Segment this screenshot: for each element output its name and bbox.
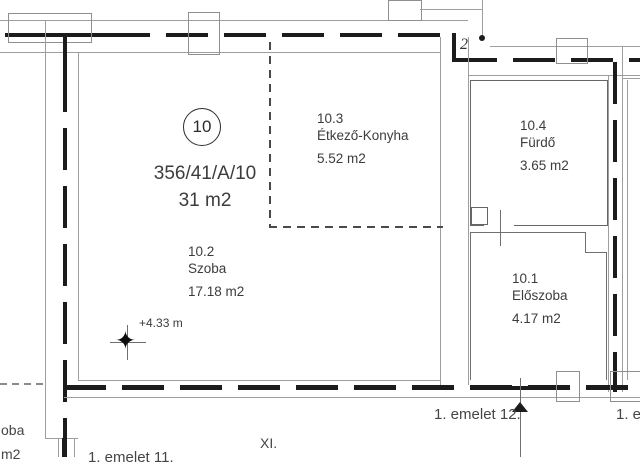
room-area: 5.52 m2	[317, 150, 409, 167]
room-id: 10.1	[512, 271, 538, 286]
kitchen-divider-horizontal	[269, 226, 443, 228]
wall-left-solid	[63, 37, 67, 70]
room-name: Szoba	[188, 261, 226, 276]
wall-stub-right-edge	[74, 438, 75, 457]
room-name: Előszoba	[512, 288, 568, 303]
bathroom-door-swing-line	[500, 210, 501, 246]
hall-right-line	[606, 252, 607, 380]
wall-top-dashed	[108, 33, 455, 37]
room-id: 10.3	[317, 111, 343, 126]
wall-line-main-right	[440, 37, 441, 385]
lot-number-label: 356/41/A/10	[130, 163, 280, 185]
room-label-szoba: 10.2 Szoba 17.18 m2	[188, 243, 244, 300]
neighbour-room-partial-label: oba	[1, 422, 24, 438]
wall-line-bottom-inner	[78, 380, 440, 381]
wall-line-right-outer	[622, 47, 623, 392]
unit-number-label: 10	[193, 117, 212, 137]
floor-plan-page: { "plan": { "unit_badge": "10", "lot_num…	[0, 0, 640, 457]
hall-left-line	[470, 232, 471, 380]
pier-symbol-top-3	[556, 38, 588, 64]
entrance-sill	[480, 386, 556, 390]
adjacent-room-top-line	[622, 78, 640, 79]
note-reference-dot	[479, 35, 485, 41]
wall-line-right-inner	[608, 75, 609, 392]
room-label-eloszoba: 10.1 Előszoba 4.17 m2	[512, 270, 568, 327]
hall-top-line	[470, 232, 585, 233]
room-label-furdo: 10.4 Fürdő 3.65 m2	[520, 117, 569, 174]
note-leader-vertical	[482, 0, 483, 38]
bathroom-door-jamb	[471, 207, 488, 225]
wall-line-bottom-outer	[64, 397, 640, 398]
wall-left-dashed	[63, 70, 67, 438]
unit-number-badge: 10	[183, 108, 221, 146]
floor-unit-caption: 1. emelet 12.	[434, 406, 521, 423]
room-name: Étkező-Konyha	[317, 128, 409, 143]
wall-right-dashed	[613, 62, 617, 392]
room-area: 3.65 m2	[520, 157, 569, 174]
room-name: Fürdő	[520, 135, 555, 150]
pier-symbol-bottom-2	[610, 371, 640, 402]
handwritten-note-label: 2	[460, 36, 468, 54]
wall-line-left-outer	[45, 20, 46, 438]
elevation-marker-icon: ✦	[115, 329, 136, 354]
room-id: 10.4	[520, 118, 546, 133]
note-leader-horizontal	[420, 9, 482, 10]
total-area-label: 31 m2	[130, 190, 280, 212]
adjacent-room-left-line	[627, 80, 628, 380]
floor-unit-caption-right-partial: 1. e	[616, 406, 640, 423]
room-id: 10.2	[188, 244, 214, 259]
room-label-etkezo-konyha: 10.3 Étkező-Konyha 5.52 m2	[317, 110, 409, 167]
floor-unit-caption-bottom-partial: 1. emelet 11.	[88, 449, 174, 466]
neighbour-area-partial-label: m2	[1, 446, 20, 462]
bathroom-door-opening	[484, 223, 514, 226]
district-caption: XI.	[260, 435, 277, 451]
hall-step-vertical	[585, 232, 586, 252]
wall-stub-left-edge	[58, 438, 59, 457]
wall-stub-solid	[62, 438, 67, 457]
pier-symbol-bottom-1	[556, 371, 580, 402]
room-area: 17.18 m2	[188, 283, 244, 300]
wall-line-left-inner	[78, 52, 79, 380]
pier-symbol-top-1	[188, 12, 220, 55]
window-symbol-top-left	[8, 13, 92, 43]
elevation-value-label: +4.33 m	[139, 316, 183, 330]
wall-line-rooms-left	[468, 37, 469, 385]
pier-symbol-top-2	[388, 0, 422, 21]
hall-step-horizontal	[585, 252, 606, 253]
room-area: 4.17 m2	[512, 310, 568, 327]
wall-bottom-left-thin-dashed	[0, 383, 45, 385]
